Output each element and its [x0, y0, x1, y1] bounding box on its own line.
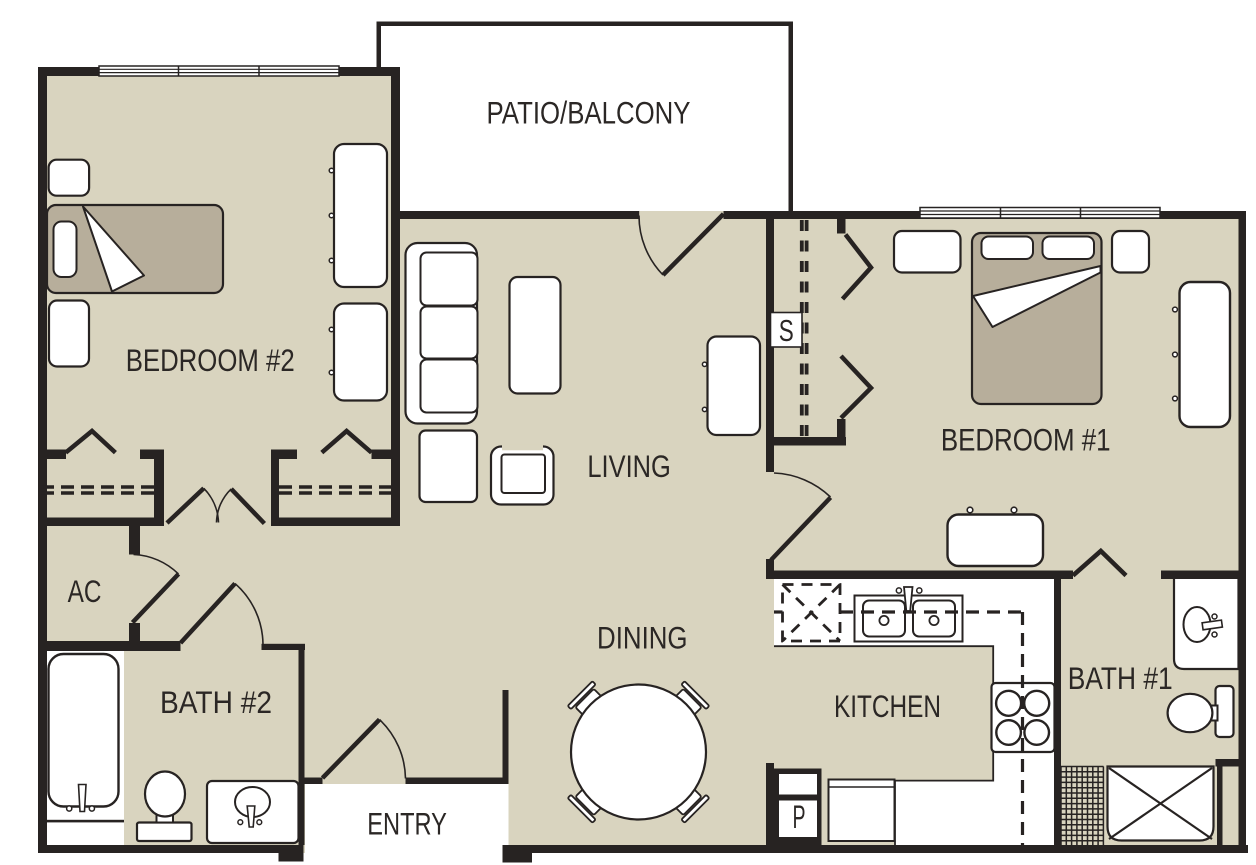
- svg-text:LIVING: LIVING: [587, 448, 670, 484]
- svg-text:S: S: [779, 313, 794, 348]
- svg-text:AC: AC: [68, 573, 102, 609]
- svg-text:BEDROOM #2: BEDROOM #2: [126, 342, 295, 378]
- svg-text:PATIO/BALCONY: PATIO/BALCONY: [487, 95, 691, 131]
- svg-text:KITCHEN: KITCHEN: [834, 688, 941, 724]
- svg-text:ENTRY: ENTRY: [367, 805, 447, 841]
- svg-text:P: P: [793, 799, 806, 835]
- svg-text:BATH #1: BATH #1: [1068, 660, 1173, 696]
- svg-text:BEDROOM #1: BEDROOM #1: [941, 421, 1111, 457]
- svg-text:DINING: DINING: [597, 619, 688, 655]
- svg-text:BATH #2: BATH #2: [160, 684, 272, 720]
